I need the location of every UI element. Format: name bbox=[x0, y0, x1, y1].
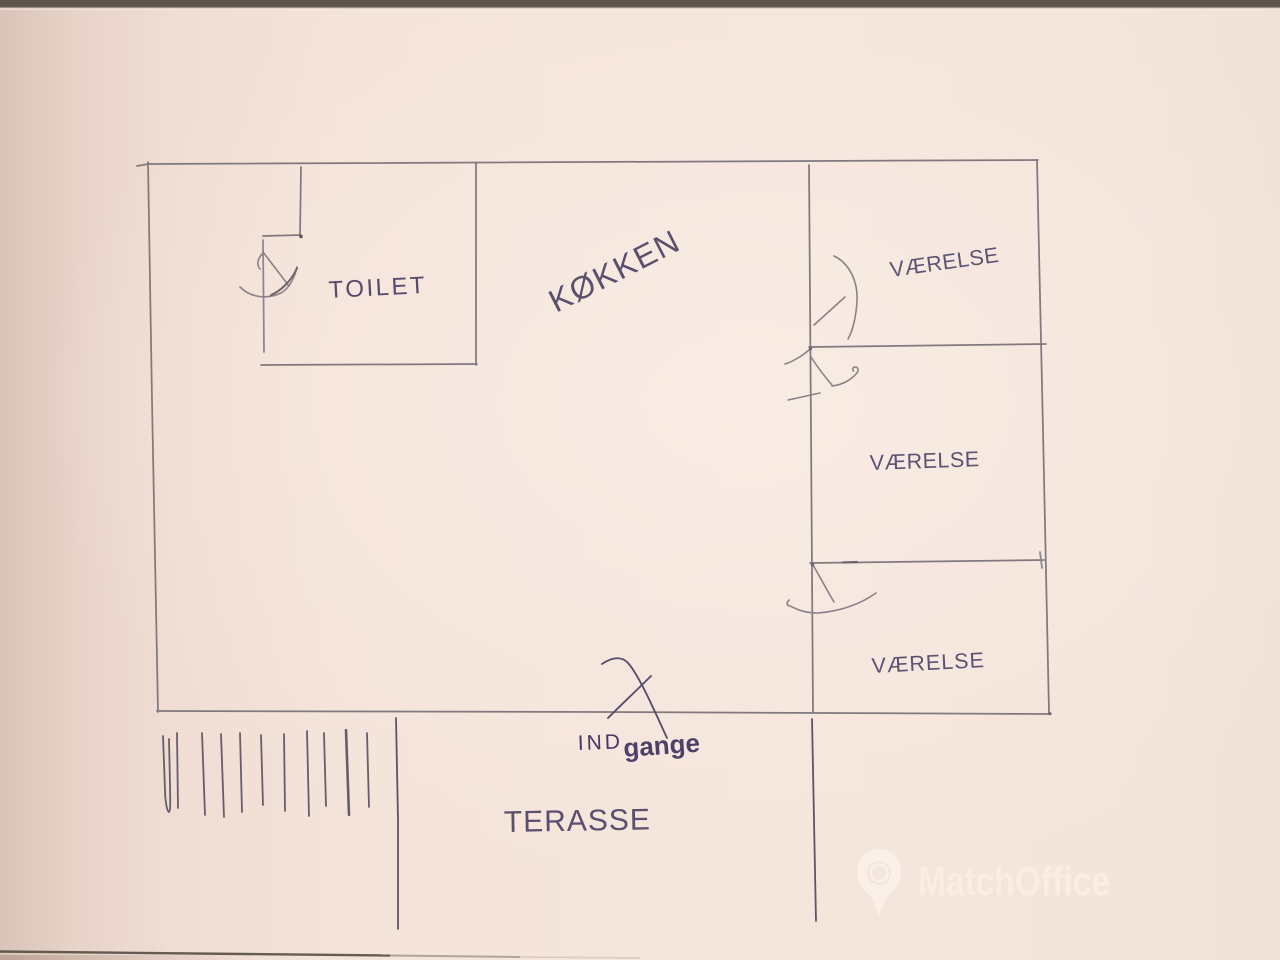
svg-text:VÆRELSE: VÆRELSE bbox=[869, 447, 980, 475]
svg-text:MatchOffice: MatchOffice bbox=[918, 858, 1110, 904]
svg-text:VÆRELSE: VÆRELSE bbox=[888, 243, 1000, 282]
svg-text:TERASSE: TERASSE bbox=[504, 803, 652, 839]
svg-text:IND: IND bbox=[577, 730, 623, 755]
svg-text:gange: gange bbox=[622, 728, 700, 763]
svg-text:VÆRELSE: VÆRELSE bbox=[871, 648, 985, 678]
svg-text:TOILET: TOILET bbox=[328, 272, 428, 304]
svg-text:KØKKEN: KØKKEN bbox=[543, 223, 686, 320]
